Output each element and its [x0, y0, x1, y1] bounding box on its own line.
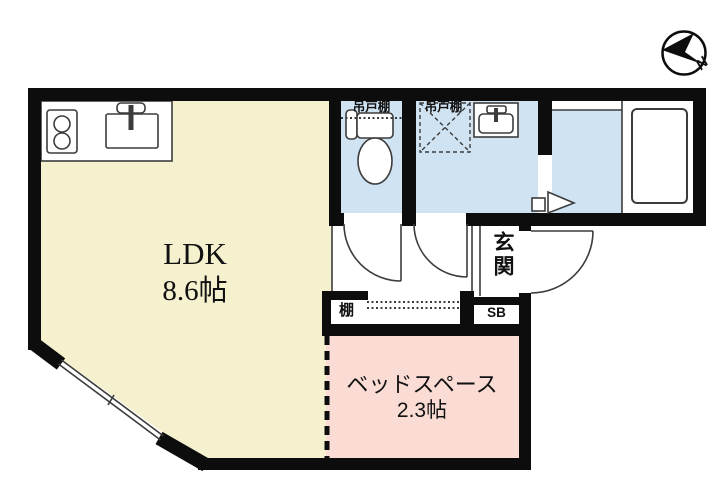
shelf-label: 棚	[330, 303, 363, 319]
wall-washroom-bathroom	[538, 88, 552, 155]
room-label-ldk: LDK	[100, 238, 290, 271]
toilet-bowl-icon	[358, 138, 392, 184]
room-area-ldk: 8.6帖	[100, 276, 290, 306]
room-label-bed-space: ベッドスペース	[320, 373, 524, 396]
wall-right-upper	[693, 88, 706, 226]
floorplan-page: LDK 8.6帖 ベッドスペース 2.3帖 玄関 棚 SB 吊戸棚 吊戸棚 N	[0, 0, 723, 491]
toilet-door-icon	[344, 224, 401, 281]
wall-genkan-right-top	[519, 213, 531, 231]
washroom-cupboard-label: 吊戸棚	[413, 101, 474, 114]
wall-left	[28, 88, 41, 350]
wall-below-bathroom	[466, 213, 706, 226]
wall-toilet-left	[329, 88, 341, 226]
toilet-tank-icon	[357, 113, 393, 138]
front-door-icon	[531, 231, 593, 293]
toilet-side-unit	[346, 110, 357, 139]
room-label-entrance: 玄関	[491, 231, 513, 303]
wall-bedspace-top	[322, 324, 531, 336]
toilet-cupboard-label: 吊戸棚	[341, 101, 402, 114]
bathtub-icon	[632, 109, 687, 203]
shoebox-label: SB	[476, 306, 517, 320]
wall-stub-toilet-left	[329, 213, 344, 226]
room-bed-space	[326, 336, 519, 458]
room-area-bed-space: 2.3帖	[320, 400, 524, 422]
wall-bottom	[198, 458, 531, 470]
washroom-door-icon	[414, 224, 467, 277]
